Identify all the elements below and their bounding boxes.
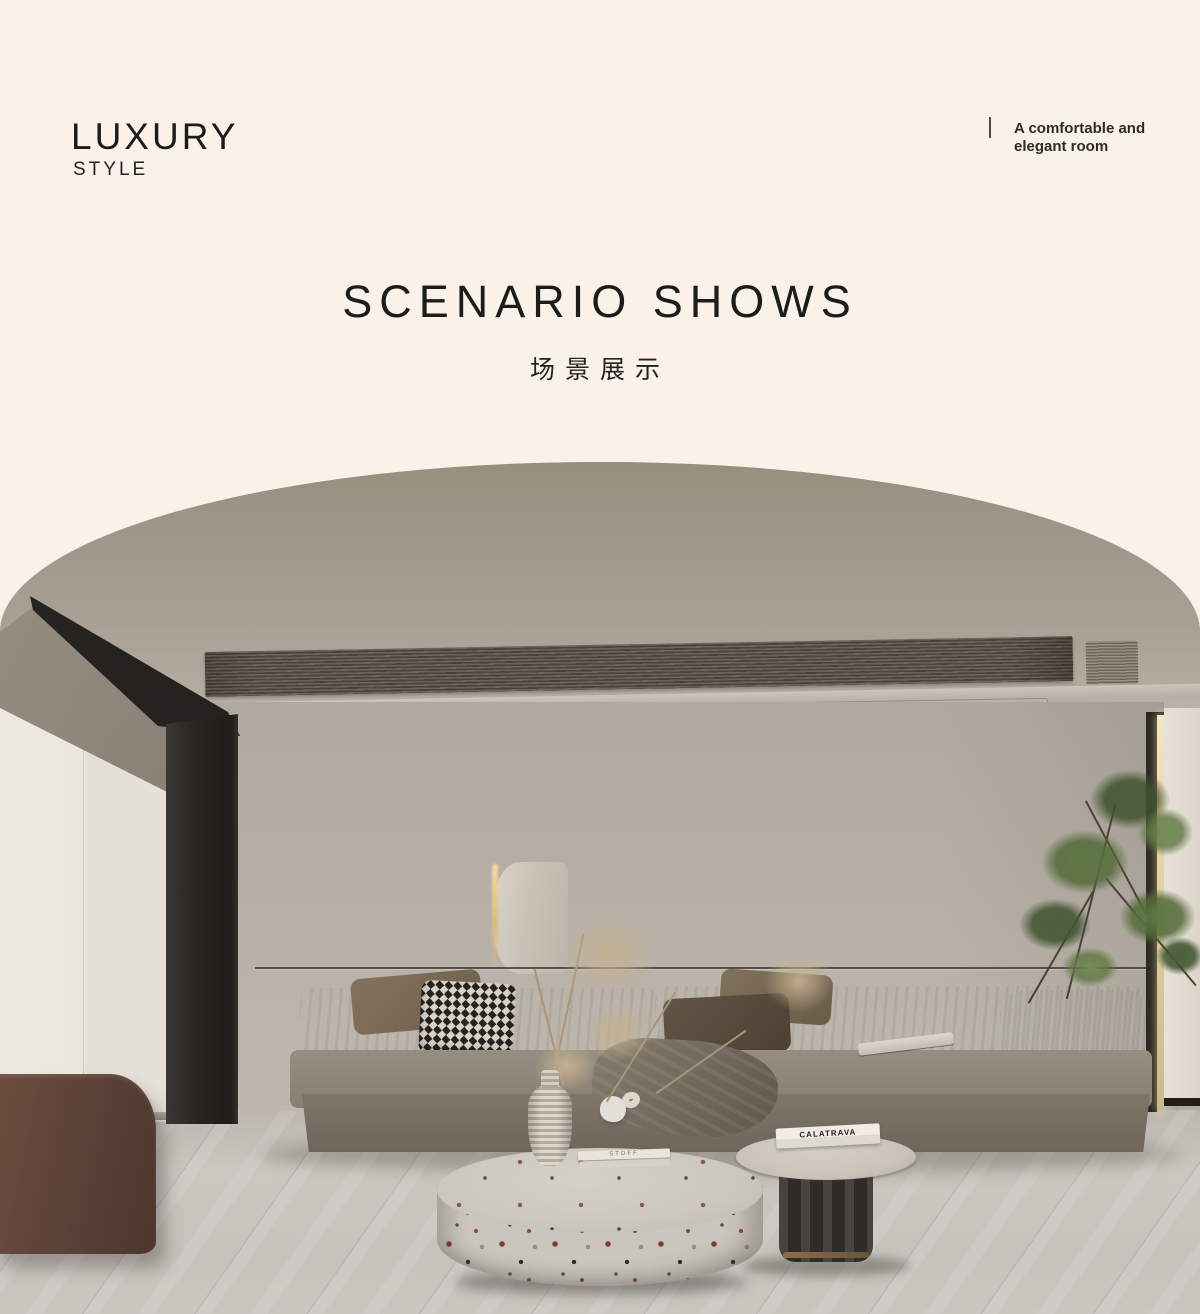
brand-subtitle: STYLE: [73, 159, 148, 181]
tagline: A comfortable and elegant room: [1014, 120, 1145, 156]
tagline-line-2: elegant room: [1014, 138, 1145, 156]
brand-title: LUXURY: [71, 116, 238, 158]
tagline-line-1: A comfortable and: [1014, 120, 1145, 138]
page: { "header": { "brand_title": "LUXURY", "…: [0, 0, 1200, 1314]
tagline-divider: [989, 117, 991, 138]
scenario-photo: CALATRAVA STOFF: [0, 462, 1200, 1314]
section-subtitle-zh: 场景展示: [0, 350, 1200, 386]
photo-tone-overlay: [0, 462, 1200, 1314]
section-title: SCENARIO SHOWS: [0, 276, 1200, 328]
